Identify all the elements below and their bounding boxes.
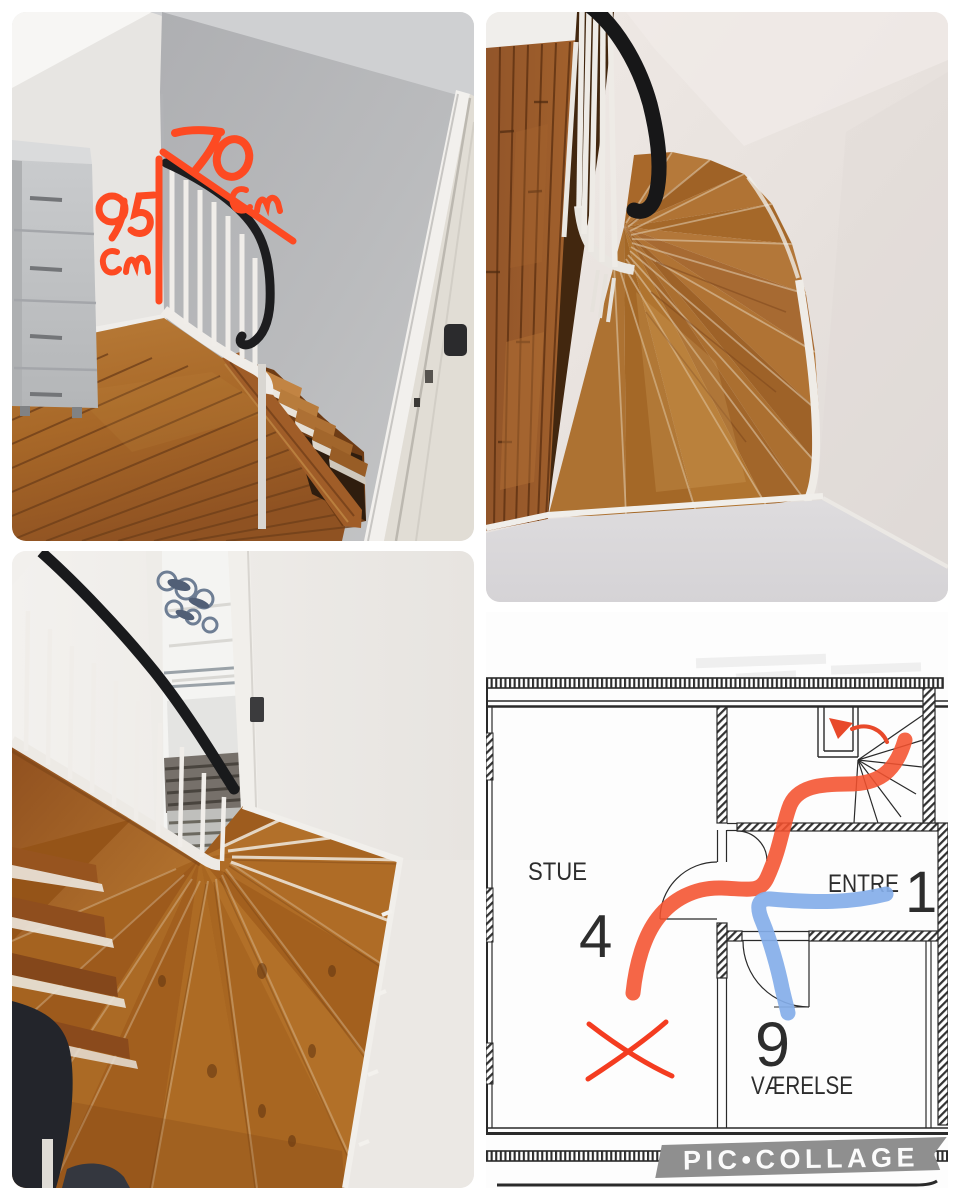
svg-text:PIC•COLLAGE: PIC•COLLAGE (683, 1142, 919, 1175)
svg-text:1: 1 (905, 860, 937, 925)
svg-text:VÆRELSE: VÆRELSE (751, 1072, 853, 1100)
svg-text:9: 9 (755, 1010, 790, 1080)
svg-text:4: 4 (579, 903, 612, 970)
svg-text:STUE: STUE (528, 858, 587, 886)
